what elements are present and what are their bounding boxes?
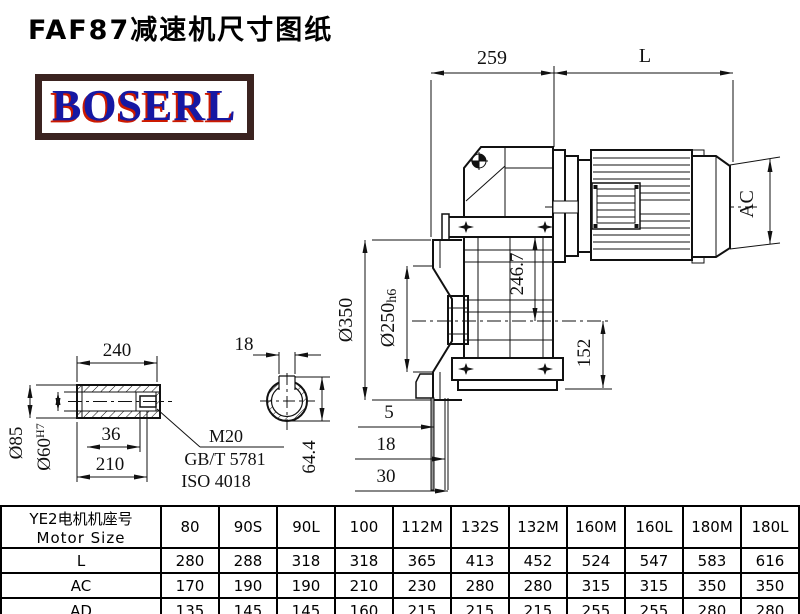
col-header: 160L [625, 506, 683, 548]
dim-d250-label: Ø250h6 [377, 289, 400, 347]
cell: 215 [509, 598, 567, 614]
main-view [355, 66, 780, 491]
dim-key-18-label: 18 [235, 334, 254, 355]
row-label: AD [1, 598, 161, 614]
cell: 280 [741, 598, 799, 614]
dim-5-label: 5 [384, 402, 394, 423]
dimension-labels: 259 L AC Ø350 Ø250h6 246.7 152 5 18 30 2… [6, 45, 758, 491]
cell: 280 [683, 598, 741, 614]
table-row-AD: AD 135 145 145 160 215 215 215 255 255 2… [1, 598, 799, 614]
input-shaft [553, 201, 578, 213]
cell: 230 [393, 573, 451, 598]
cell: 413 [451, 548, 509, 573]
col-header: 80 [161, 506, 219, 548]
cell: 190 [277, 573, 335, 598]
cell: 524 [567, 548, 625, 573]
table-header-row: YE2电机机座号 Motor Size 80 90S 90L 100 112M … [1, 506, 799, 548]
flange-section-lower [431, 398, 448, 490]
dim-18-label: 18 [377, 434, 396, 455]
cell: 135 [161, 598, 219, 614]
cell: 280 [509, 573, 567, 598]
dim-30-label: 30 [377, 466, 396, 487]
row-label: L [1, 548, 161, 573]
cell: 547 [625, 548, 683, 573]
cell: 315 [567, 573, 625, 598]
table-row-L: L 280 288 318 318 365 413 452 524 547 58… [1, 548, 799, 573]
fan-cowl [692, 150, 730, 263]
dim-210-label: 210 [96, 454, 125, 475]
cell: 190 [219, 573, 277, 598]
dim-246-7-label: 246.7 [507, 253, 528, 296]
row-label: AC [1, 573, 161, 598]
cell: 350 [741, 573, 799, 598]
cell: 255 [625, 598, 683, 614]
motor-size-table: YE2电机机座号 Motor Size 80 90S 90L 100 112M … [0, 505, 800, 614]
table-row-AC: AC 170 190 190 210 230 280 280 315 315 3… [1, 573, 799, 598]
cell: 170 [161, 573, 219, 598]
thread-label: M20 [209, 426, 243, 446]
col-header: 132S [451, 506, 509, 548]
motor-end-cap [578, 160, 591, 252]
drawing-sheet: FAF87减速机尺寸图纸 BOSERL [0, 0, 800, 614]
cell: 452 [509, 548, 567, 573]
dim-AC-label: AC [736, 190, 758, 218]
cell: 210 [335, 573, 393, 598]
header-line1: YE2电机机座号 [2, 508, 160, 529]
col-header: 90S [219, 506, 277, 548]
col-header: 100 [335, 506, 393, 548]
dim-259-label: 259 [477, 47, 507, 69]
cell: 616 [741, 548, 799, 573]
col-header: 132M [509, 506, 567, 548]
table-header-cell: YE2电机机座号 Motor Size [1, 506, 161, 548]
dim-36-label: 36 [102, 424, 121, 445]
col-header: 180M [683, 506, 741, 548]
dim-d60-label: Ø60H7 [33, 423, 55, 470]
standard-iso-label: ISO 4018 [181, 471, 251, 491]
shaft-section-view [253, 352, 330, 430]
cell: 318 [335, 548, 393, 573]
cell: 583 [683, 548, 741, 573]
col-header: 160M [567, 506, 625, 548]
cell: 350 [683, 573, 741, 598]
target-marker [470, 152, 488, 170]
cell: 280 [161, 548, 219, 573]
oil-pan-base [458, 380, 557, 390]
cell: 145 [219, 598, 277, 614]
dim-152-label: 152 [574, 339, 595, 368]
col-header: 180L [741, 506, 799, 548]
dim-64-4-label: 64.4 [299, 440, 320, 474]
dim-d350-label: Ø350 [335, 298, 357, 342]
col-header: 90L [277, 506, 335, 548]
standard-gbt-label: GB/T 5781 [184, 449, 265, 469]
dim-lines-flange [365, 240, 433, 400]
dim-L-label: L [639, 45, 651, 67]
cell: 318 [277, 548, 335, 573]
header-line2: Motor Size [2, 529, 160, 547]
cell: 145 [277, 598, 335, 614]
dim-d85-label: Ø85 [6, 427, 27, 460]
cell: 288 [219, 548, 277, 573]
motor-winding-cover [592, 183, 640, 229]
cell: 315 [625, 573, 683, 598]
cell: 280 [451, 573, 509, 598]
cell: 365 [393, 548, 451, 573]
cell: 215 [451, 598, 509, 614]
dim-240-label: 240 [103, 340, 132, 361]
cell: 215 [393, 598, 451, 614]
mount-flange-lip [442, 214, 449, 240]
col-header: 112M [393, 506, 451, 548]
cell: 255 [567, 598, 625, 614]
cell: 160 [335, 598, 393, 614]
bolt-hole-markers [458, 221, 553, 375]
